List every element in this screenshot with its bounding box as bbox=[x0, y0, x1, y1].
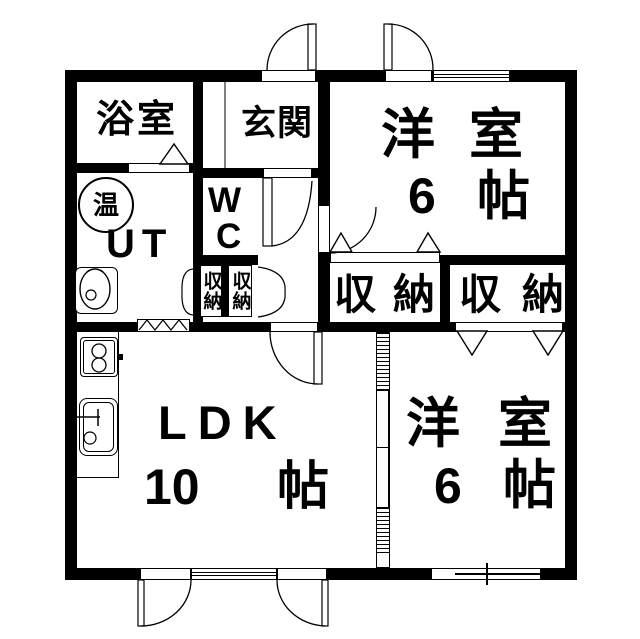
sliding-door-track bbox=[377, 333, 389, 390]
room-top-outer-door-opening bbox=[385, 70, 432, 82]
room-top-door-arc bbox=[330, 207, 376, 253]
window-pane-line bbox=[192, 575, 276, 576]
closet-label: 収納 bbox=[202, 271, 221, 311]
kitchen-sink bbox=[79, 398, 118, 456]
bath-folding-door-triangle bbox=[160, 144, 188, 164]
room-bottom-size-value: 6 bbox=[434, 461, 462, 511]
closet-folding-door-triangle bbox=[457, 331, 487, 355]
accordion-door bbox=[137, 319, 190, 332]
floorplan: 収納 収納 温 bbox=[0, 0, 640, 639]
window-pane-line bbox=[434, 74, 509, 75]
room-top-label: 洋室 bbox=[381, 108, 557, 162]
closet-double-door-arc bbox=[258, 267, 285, 317]
closet-room-top-front bbox=[330, 252, 440, 263]
french-door-right-leaf bbox=[322, 580, 328, 626]
wall-mid-2 bbox=[190, 322, 270, 332]
wall-mid-3 bbox=[318, 322, 455, 332]
ldk-size-value: 10 bbox=[144, 462, 200, 512]
sliding-door bbox=[376, 332, 390, 568]
french-door-left-panel bbox=[140, 568, 191, 580]
door-swing-triangle bbox=[330, 233, 352, 252]
room-bottom-size-unit: 帖 bbox=[503, 459, 556, 512]
stove bbox=[80, 337, 118, 377]
bathroom-label: 浴室 bbox=[96, 101, 178, 139]
closet-label: 収納 bbox=[231, 271, 250, 311]
french-door-right-panel bbox=[277, 568, 327, 580]
entrance-door-arc bbox=[267, 24, 313, 70]
window-slider-tick bbox=[486, 563, 488, 585]
ldk-door-opening bbox=[270, 322, 318, 332]
window-pane-line bbox=[192, 572, 276, 573]
window-slider-line bbox=[455, 573, 541, 575]
stove-knob bbox=[118, 354, 123, 360]
ldk-label: LDK bbox=[158, 399, 288, 446]
french-door-right-arc bbox=[277, 580, 325, 626]
washbasin-faucet bbox=[65, 287, 75, 292]
ldk-door-leaf bbox=[314, 332, 322, 384]
closet-small-left-box: 収納 bbox=[200, 265, 222, 317]
water-heater-symbol: 温 bbox=[93, 192, 119, 218]
closet-folding-door-triangle bbox=[533, 331, 563, 355]
closet-room-bottom-front bbox=[455, 322, 563, 332]
room-bottom-label: 洋室 bbox=[406, 397, 590, 451]
closet-double-door-arc bbox=[182, 269, 193, 315]
wall-mid-1 bbox=[65, 322, 137, 332]
bath-door-opening bbox=[128, 163, 190, 173]
french-door-left-leaf bbox=[138, 580, 144, 626]
washbasin bbox=[75, 267, 118, 314]
entrance-door-opening bbox=[261, 70, 316, 82]
closet-folding-door-triangle bbox=[417, 233, 440, 252]
wall-mid-4 bbox=[563, 322, 577, 332]
wall-entrance-right bbox=[318, 70, 330, 332]
entrance-hall-door-opening bbox=[263, 168, 312, 178]
french-door-center-pane bbox=[191, 568, 277, 580]
room-top-outer-door-leaf bbox=[384, 24, 392, 70]
toilet-label-c: C bbox=[216, 219, 241, 254]
wall-wc-bottom bbox=[193, 255, 258, 265]
sliding-door-track bbox=[377, 508, 389, 554]
room-top-outer-door-arc bbox=[388, 24, 433, 70]
entrance-label: 玄関 bbox=[241, 106, 313, 141]
toilet-label-w: W bbox=[208, 183, 241, 218]
hall-door-arc bbox=[272, 181, 312, 246]
room-top-door-opening bbox=[318, 205, 330, 253]
room-top-size-unit: 帖 bbox=[477, 170, 530, 223]
sliding-door-leaf bbox=[376, 390, 389, 508]
ldk-size-unit: 帖 bbox=[277, 461, 329, 513]
window-pane-line bbox=[434, 77, 509, 78]
room-top-size-value: 6 bbox=[408, 171, 436, 221]
sliding-door-leaf-tick bbox=[377, 447, 389, 448]
room-top-window bbox=[433, 70, 510, 82]
entrance-door-leaf bbox=[308, 24, 316, 70]
utility-label: UT bbox=[106, 224, 173, 264]
closet-room-top-label: 収納 bbox=[334, 274, 452, 316]
wall-roomtop-bottom bbox=[440, 255, 577, 265]
hall-door-leaf bbox=[263, 178, 272, 246]
closet-room-bottom-label: 収納 bbox=[459, 274, 585, 316]
ldk-door-arc bbox=[270, 332, 318, 384]
french-door-left-arc bbox=[141, 580, 191, 626]
closet-small-right-box: 収納 bbox=[228, 265, 252, 317]
